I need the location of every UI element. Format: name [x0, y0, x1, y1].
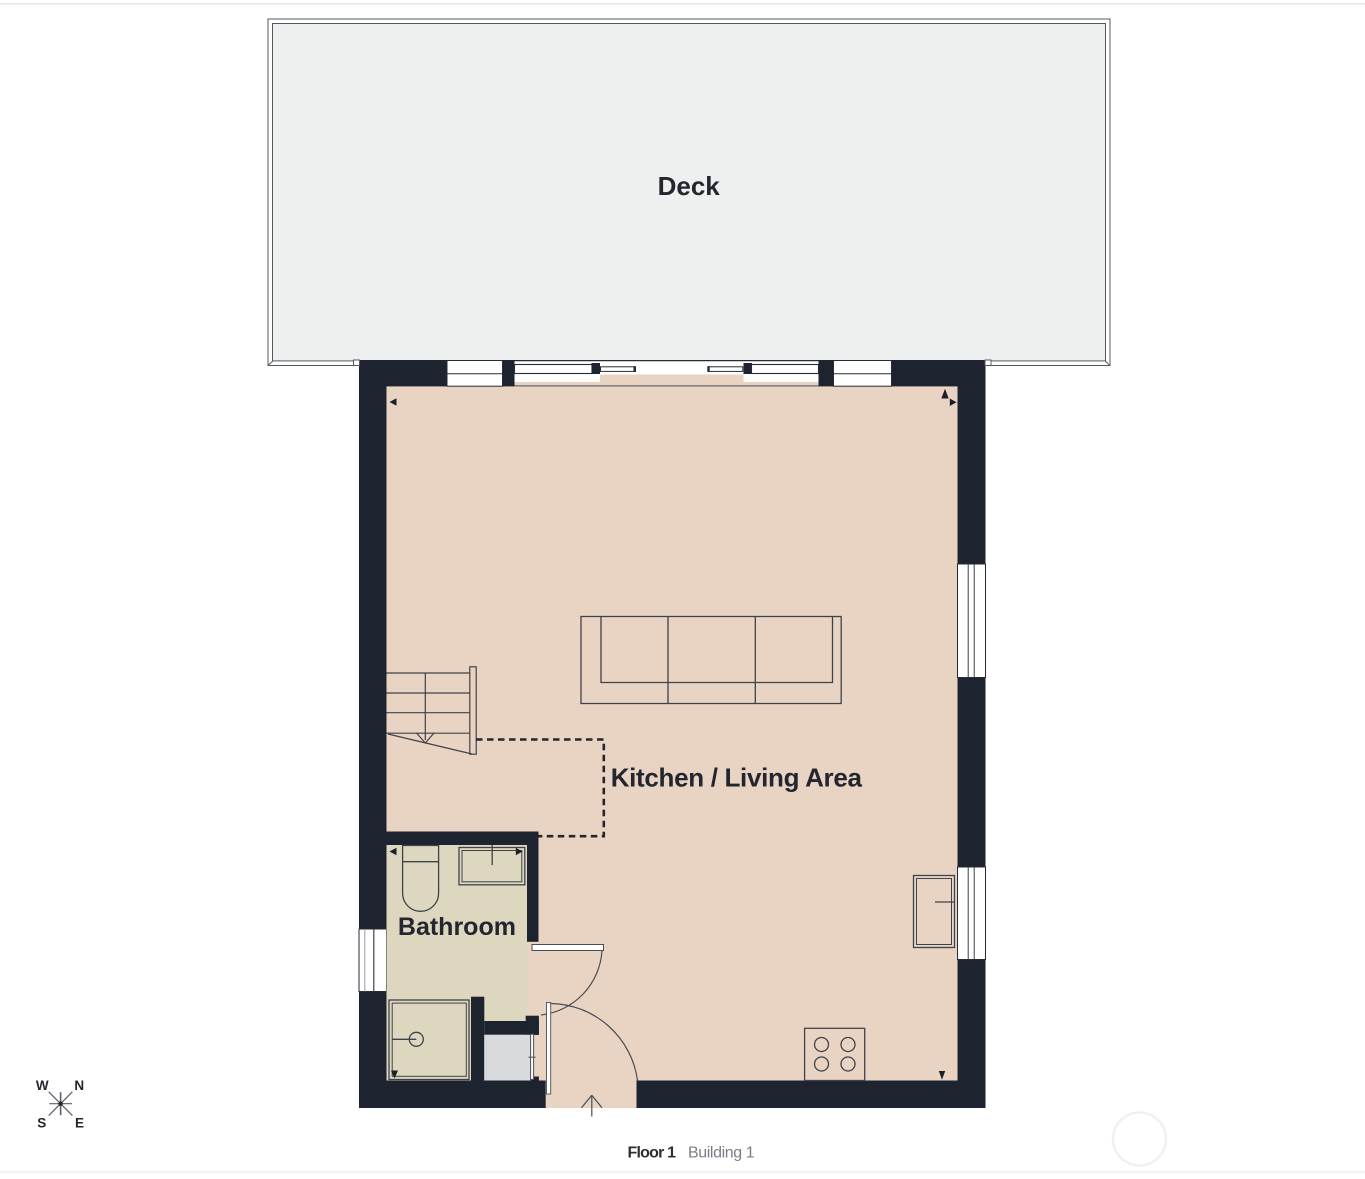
svg-text:S: S [37, 1116, 46, 1131]
svg-text:Building 1: Building 1 [688, 1145, 755, 1162]
svg-text:Kitchen / Living Area: Kitchen / Living Area [611, 763, 863, 793]
svg-text:E: E [75, 1116, 84, 1131]
svg-text:Bathroom: Bathroom [398, 913, 516, 941]
svg-text:W: W [36, 1078, 49, 1093]
svg-text:Deck: Deck [658, 171, 721, 201]
svg-text:N: N [74, 1078, 84, 1093]
svg-text:Floor 1: Floor 1 [628, 1145, 677, 1162]
